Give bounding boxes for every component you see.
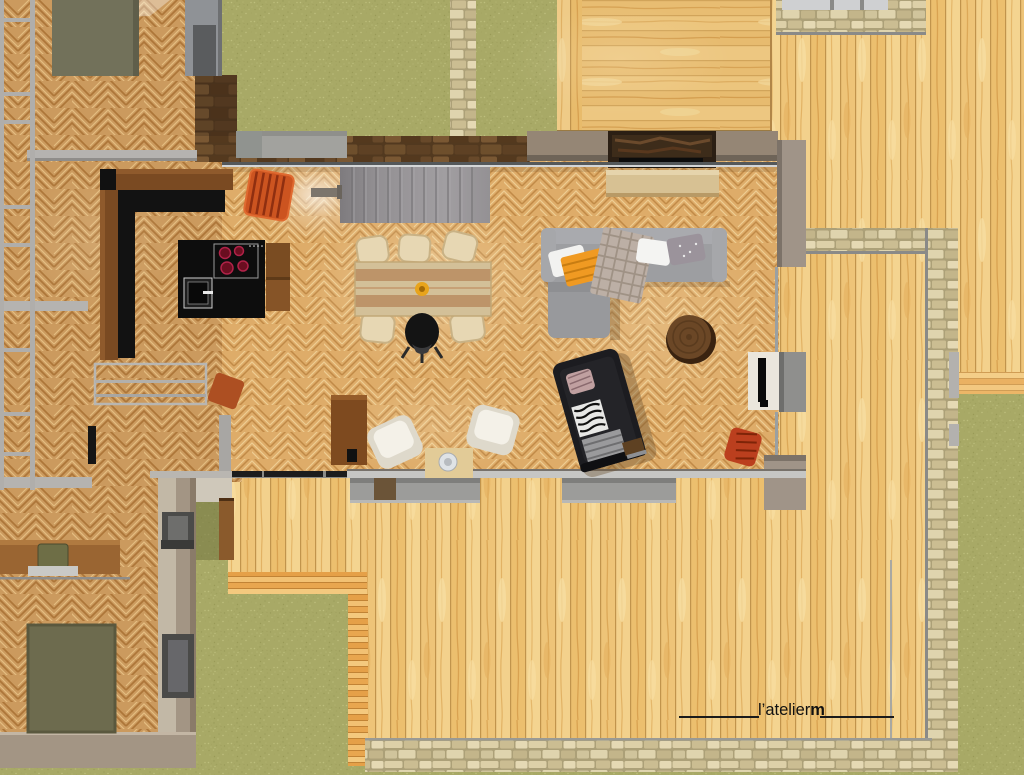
svg-text:l’atelierm: l’atelierm xyxy=(758,701,825,719)
